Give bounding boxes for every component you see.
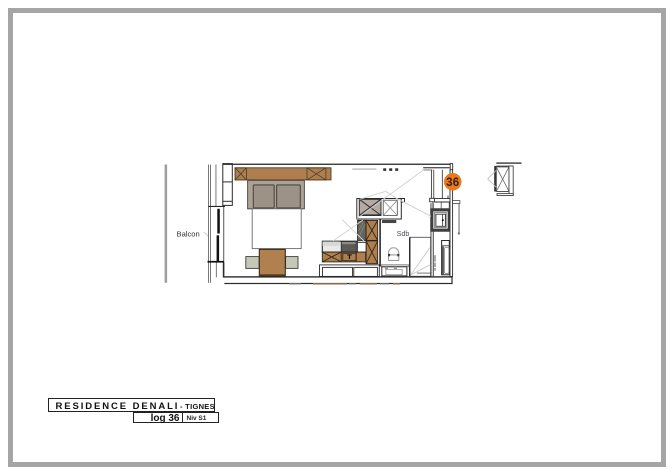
svg-text:Balcon: Balcon	[177, 230, 200, 239]
svg-text:Sdb: Sdb	[397, 231, 410, 238]
svg-text:36: 36	[446, 177, 459, 189]
